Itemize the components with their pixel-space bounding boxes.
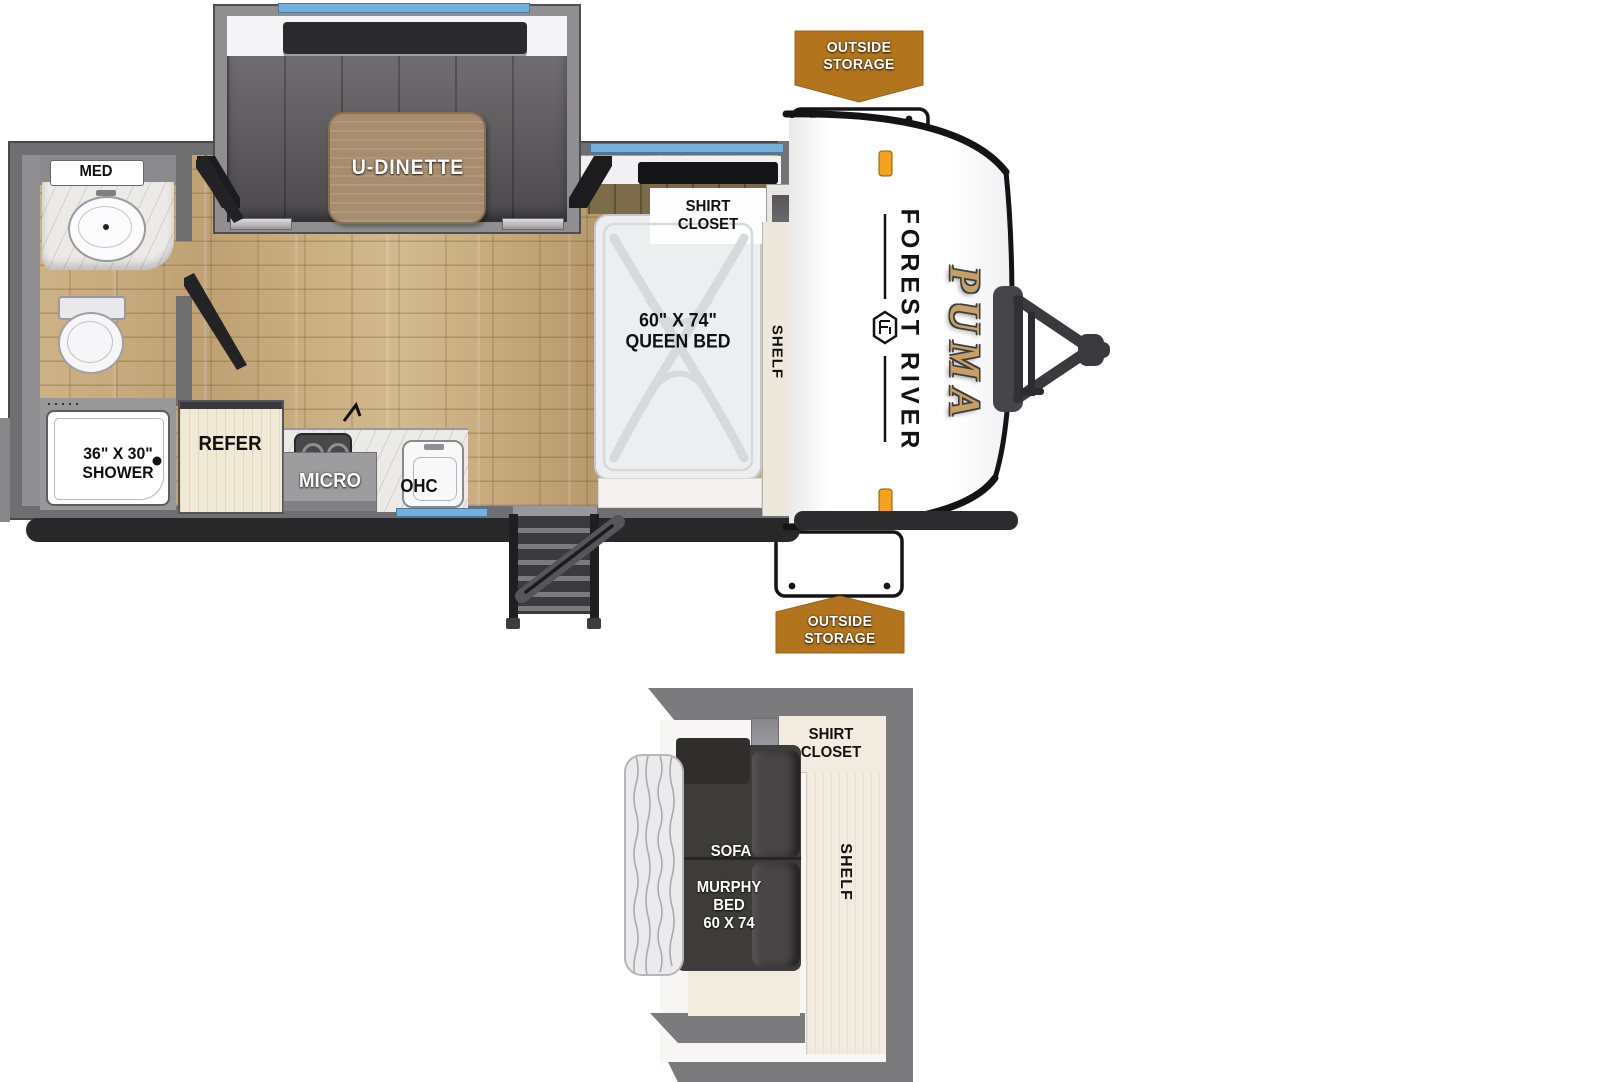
- shelf-label: SHELF: [770, 325, 785, 379]
- bedroom-door-leaf: [184, 273, 247, 370]
- ohc-label: OHC: [400, 476, 437, 496]
- frame-rail: [26, 518, 800, 542]
- puma-brand: PUMA: [940, 266, 989, 426]
- slideout-seal-right: [569, 156, 612, 208]
- inset-murphy-bed-label: MURPHY BED 60 X 74: [697, 879, 761, 933]
- queen-bed-label: 60" X 74" QUEEN BED: [625, 311, 730, 354]
- outside-storage-bottom-label: OUTSIDE STORAGE: [804, 614, 875, 648]
- inset-shirt-closet-label: SHIRT CLOSET: [801, 726, 861, 762]
- inset-shelf-label: SHELF: [837, 843, 853, 900]
- med-label: MED: [79, 163, 112, 181]
- front-frame-rail: [794, 511, 1018, 530]
- structural-overlay: [0, 0, 1600, 1082]
- hitch-assembly: [993, 286, 1110, 412]
- refer-door-arrow: [344, 405, 360, 421]
- entry-steps: [506, 514, 618, 629]
- shower-drain: [153, 457, 162, 466]
- shower-label: 36" X 30" SHOWER: [82, 444, 153, 482]
- shirt-closet-label: SHIRT CLOSET: [678, 198, 738, 234]
- micro-label: MICRO: [299, 470, 361, 492]
- outside-storage-compartment-bottom: [776, 532, 902, 596]
- rv-floorplan-canvas: MED 36" X 30" SHOWER REFER MICRO OHC U-D…: [0, 0, 1600, 1082]
- forest-river-brand: FOREST RIVER: [895, 209, 924, 454]
- u-dinette-label: U-DINETTE: [352, 156, 465, 180]
- refer-label: REFER: [198, 433, 261, 455]
- marker-light-icon: [879, 151, 892, 176]
- outside-storage-top-label: OUTSIDE STORAGE: [823, 40, 894, 74]
- inset-sofa-label: SOFA: [711, 843, 752, 861]
- marker-light-icon: [879, 489, 892, 514]
